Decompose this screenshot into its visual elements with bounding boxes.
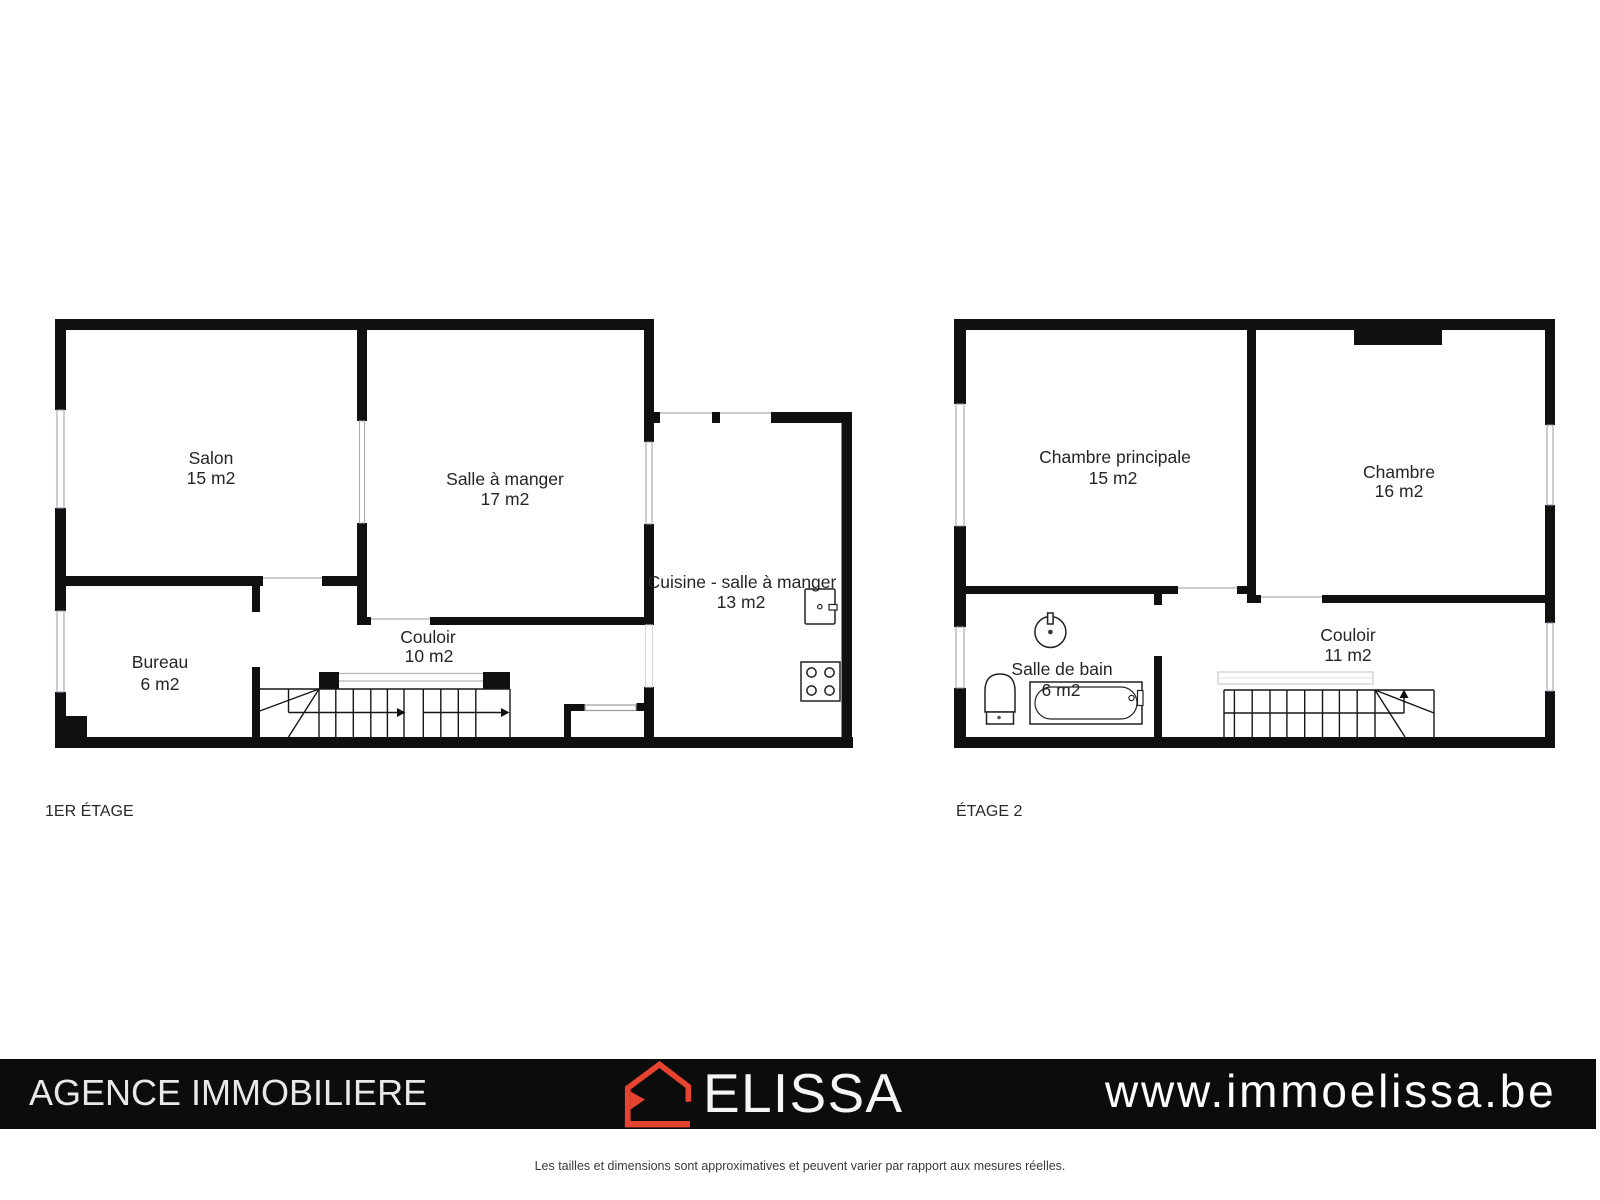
svg-text:6 m2: 6 m2	[1042, 680, 1081, 700]
svg-text:10 m2: 10 m2	[405, 646, 454, 666]
svg-text:17 m2: 17 m2	[481, 489, 530, 509]
svg-text:Chambre principale: Chambre principale	[1039, 447, 1191, 467]
svg-text:www.immoelissa.be: www.immoelissa.be	[1104, 1065, 1557, 1117]
svg-text:Cuisine - salle à manger: Cuisine - salle à manger	[648, 572, 837, 592]
svg-text:ELISSA: ELISSA	[703, 1062, 903, 1124]
svg-text:Couloir: Couloir	[400, 627, 456, 647]
svg-text:AGENCE IMMOBILIERE: AGENCE IMMOBILIERE	[29, 1072, 427, 1113]
svg-text:16 m2: 16 m2	[1375, 481, 1424, 501]
svg-text:Bureau: Bureau	[132, 652, 188, 672]
svg-text:Chambre: Chambre	[1363, 462, 1435, 482]
svg-text:15 m2: 15 m2	[1089, 468, 1138, 488]
svg-text:Salle de bain: Salle de bain	[1011, 659, 1112, 679]
svg-text:13 m2: 13 m2	[717, 592, 766, 612]
svg-text:ÉTAGE 2: ÉTAGE 2	[956, 801, 1022, 820]
svg-text:Les tailles et dimensions sont: Les tailles et dimensions sont approxima…	[535, 1159, 1066, 1173]
svg-text:6 m2: 6 m2	[141, 674, 180, 694]
svg-text:1ER ÉTAGE: 1ER ÉTAGE	[45, 801, 134, 820]
svg-text:Salle à manger: Salle à manger	[446, 469, 564, 489]
svg-text:15 m2: 15 m2	[187, 468, 236, 488]
svg-text:Couloir: Couloir	[1320, 625, 1376, 645]
svg-text:11 m2: 11 m2	[1324, 645, 1371, 665]
svg-text:Salon: Salon	[189, 448, 234, 468]
